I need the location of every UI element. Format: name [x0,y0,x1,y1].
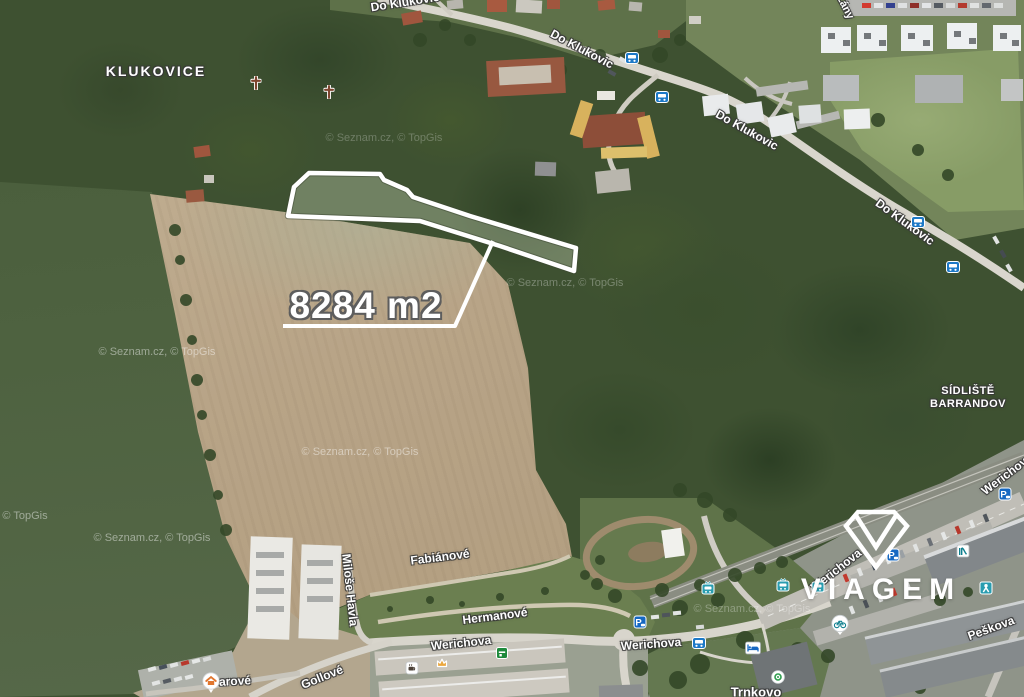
slide-icon[interactable] [957,545,970,558]
parking-icon[interactable]: P [999,488,1012,501]
watermark: © Seznam.cz, © TopGis [302,446,419,458]
bus-stop-icon[interactable] [625,52,639,64]
viagem-logo-text: VIAGEM [801,573,961,607]
street-label-trnkovo: Trnkovo [731,685,782,697]
bus-stop-icon[interactable] [946,261,960,273]
bicycle-icon[interactable] [831,615,849,636]
watermark: © Seznam.cz, © TopGis [507,277,624,289]
svg-text:P: P [635,618,642,629]
svg-text:P: P [1000,490,1007,501]
watermark: © Seznam.cz, © TopGis [94,532,211,544]
playground-icon[interactable] [980,582,993,595]
store-icon[interactable] [496,647,508,659]
tram-stop-icon[interactable] [701,581,715,595]
wayside-cross-icon[interactable] [251,76,262,90]
cafe-icon[interactable] [406,662,419,675]
watermark: © Seznam.cz, © TopGis [99,346,216,358]
crown-icon[interactable] [435,657,449,669]
watermark: © Seznam.cz, © TopGis [326,132,443,144]
watermark: © TopGis [2,510,47,522]
house-icon[interactable] [202,672,220,694]
pharmacy-circle-icon[interactable] [771,670,785,684]
area-label-sidliste-barrandov: SÍDLIŠTĚ BARRANDOV [930,385,1006,411]
area-label-klukovice: KLUKOVICE [106,63,206,79]
plot-area-label: 8284 m2 [289,285,442,327]
map-canvas[interactable]: © Seznam.cz, © TopGis © Seznam.cz, © Top… [0,0,1024,697]
tram-stop-icon[interactable] [776,578,790,592]
sidliste-line1: SÍDLIŠTĚ [930,385,1006,398]
watermark: © Seznam.cz, © TopGis [694,603,811,615]
parking-icon[interactable]: P [634,616,647,629]
street-label-arove-partial: arové [219,673,252,689]
bus-stop-icon[interactable] [911,216,925,228]
wayside-cross-icon[interactable] [324,85,335,99]
bus-stop-icon[interactable] [655,91,669,103]
bus-stop-icon[interactable] [692,637,706,649]
sidliste-line2: BARRANDOV [930,398,1006,411]
viagem-logo-icon [840,508,912,572]
hotel-bed-icon[interactable] [745,642,761,655]
